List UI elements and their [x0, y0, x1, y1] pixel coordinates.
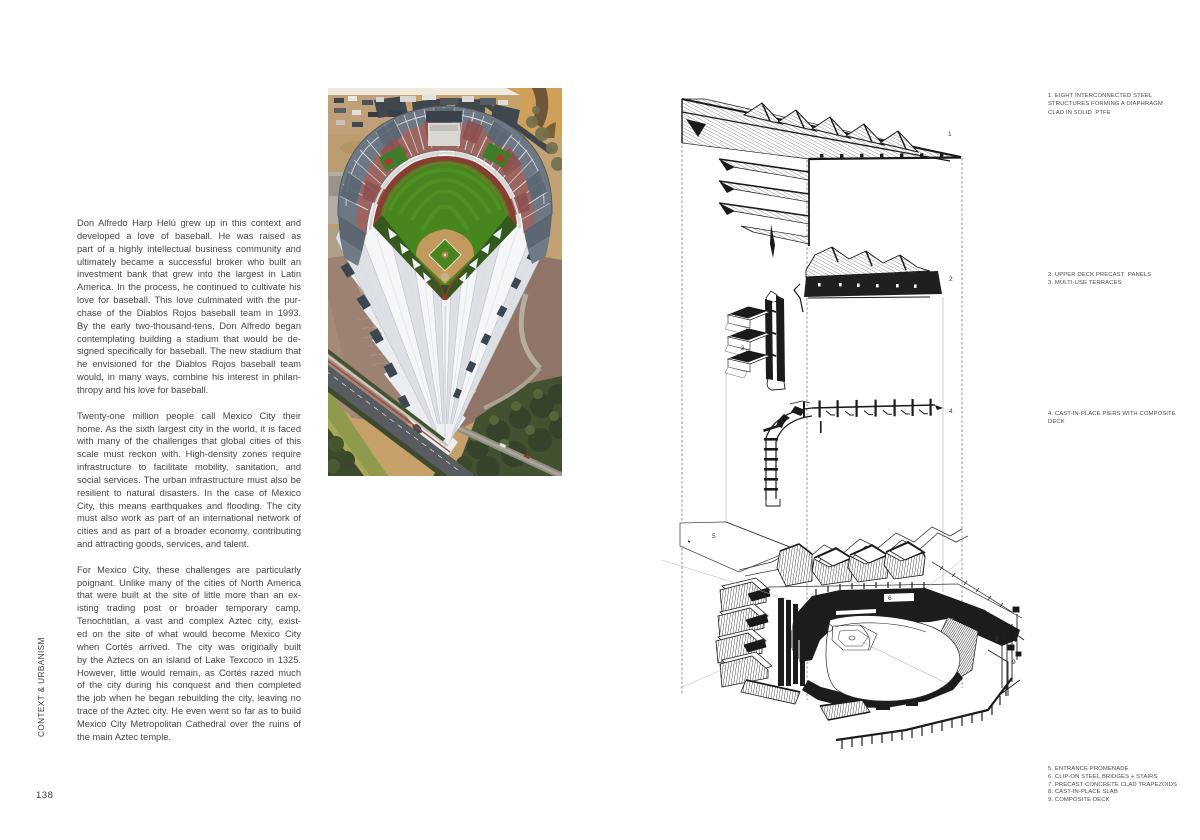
svg-text:4: 4 [949, 408, 953, 415]
svg-text:1: 1 [948, 131, 952, 138]
svg-text:5: 5 [712, 533, 716, 540]
svg-text:3: 3 [741, 345, 745, 352]
svg-text:8: 8 [995, 636, 999, 643]
svg-text:2: 2 [949, 276, 953, 283]
svg-text:9: 9 [1012, 659, 1016, 666]
svg-text:7: 7 [912, 698, 916, 705]
svg-text:6: 6 [888, 595, 892, 602]
